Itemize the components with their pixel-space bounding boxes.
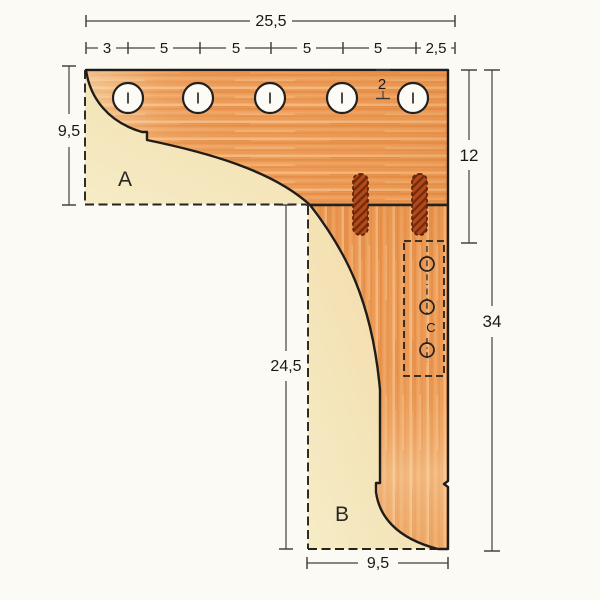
dim-overall-width-label: 25,5	[255, 13, 286, 30]
seg-label-3: 5	[303, 40, 311, 57]
dim-bottom-width: 9,5	[307, 555, 448, 572]
seg-label-1: 5	[160, 40, 168, 57]
dim-lower-left: 24,5	[270, 205, 301, 549]
dim-left-height-label: 9,5	[58, 123, 80, 140]
dowel-slot-2	[412, 174, 427, 235]
dim-overall-height: 34	[483, 70, 502, 551]
dim-upper-right-label: 12	[460, 146, 479, 165]
diagram-canvas: C A B 25,5	[0, 0, 600, 600]
dim-hole-segments: 3 5 5 5 5 2,5	[86, 40, 455, 57]
seg-label-4: 5	[374, 40, 382, 57]
seg-label-0: 3	[103, 40, 111, 57]
bracket-plan-svg: C A B 25,5	[0, 0, 600, 600]
dim-upper-right: 12	[460, 70, 479, 243]
seg-label-2: 5	[232, 40, 240, 57]
part-c-label: C	[426, 320, 435, 335]
seg-label-5: 2,5	[426, 40, 447, 57]
dowel-slot-1	[353, 174, 368, 235]
part-b-label: B	[335, 503, 349, 526]
dim-overall-width: 25,5	[86, 13, 455, 30]
dim-bottom-width-label: 9,5	[367, 555, 389, 572]
dim-hole-offset-label: 2	[378, 76, 386, 93]
part-a-label: A	[118, 168, 132, 191]
dim-left-height: 9,5	[58, 66, 80, 205]
dim-overall-height-label: 34	[483, 312, 502, 331]
dim-lower-left-label: 24,5	[270, 358, 301, 375]
